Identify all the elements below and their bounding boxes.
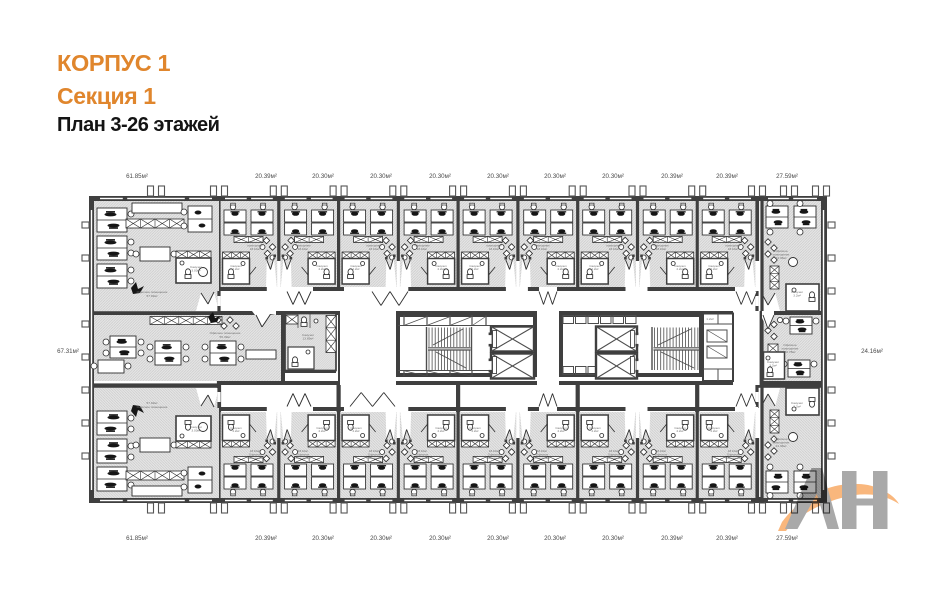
svg-text:3.03м²: 3.03м²: [191, 428, 200, 432]
svg-text:2.2м²: 2.2м²: [472, 267, 479, 271]
svg-text:20.30м²: 20.30м²: [312, 535, 334, 542]
svg-text:24.36м²: 24.36м²: [776, 256, 787, 260]
svg-text:27.59м²: 27.59м²: [776, 173, 798, 180]
svg-text:24.16м²: 24.16м²: [861, 348, 883, 355]
svg-text:помещение: помещение: [534, 456, 550, 460]
svg-text:57.92м²: 57.92м²: [147, 294, 158, 298]
svg-text:3.2м²: 3.2м²: [793, 404, 800, 408]
svg-text:18.10м²: 18.10м²: [250, 247, 260, 251]
svg-text:3.2м²: 3.2м²: [769, 363, 776, 367]
svg-text:18.10м²: 18.10м²: [656, 247, 666, 251]
svg-text:20.30м²: 20.30м²: [429, 173, 451, 180]
svg-text:67.31м²: 67.31м²: [57, 348, 79, 355]
svg-text:18.10м²: 18.10м²: [489, 247, 499, 251]
svg-text:помещение: помещение: [247, 456, 263, 460]
svg-text:61.85м²: 61.85м²: [126, 535, 148, 542]
svg-text:2.2м²: 2.2м²: [558, 267, 565, 271]
svg-text:20.30м²: 20.30м²: [312, 173, 334, 180]
svg-text:20.78м²: 20.78м²: [785, 350, 796, 354]
svg-text:18.10м²: 18.10м²: [609, 247, 619, 251]
svg-text:2.2м²: 2.2м²: [711, 267, 718, 271]
svg-text:2.2м²: 2.2м²: [233, 429, 240, 433]
svg-text:20.30м²: 20.30м²: [602, 173, 624, 180]
svg-text:помещение: помещение: [725, 456, 741, 460]
svg-text:2.2м²: 2.2м²: [438, 267, 445, 271]
svg-text:20.39м²: 20.39м²: [716, 173, 738, 180]
svg-text:1.2м²: 1.2м²: [706, 317, 713, 321]
svg-text:2.2м²: 2.2м²: [319, 267, 326, 271]
svg-text:20.30м²: 20.30м²: [370, 535, 392, 542]
svg-text:2.2м²: 2.2м²: [677, 429, 684, 433]
svg-text:Офисное помещение: Офисное помещение: [137, 405, 168, 409]
svg-text:18.10м²: 18.10м²: [417, 247, 427, 251]
svg-text:18.10м²: 18.10м²: [537, 247, 547, 251]
svg-text:13.85м²: 13.85м²: [303, 337, 314, 341]
svg-text:2.2м²: 2.2м²: [592, 267, 599, 271]
svg-text:61.85м²: 61.85м²: [126, 173, 148, 180]
svg-text:55.49м²: 55.49м²: [220, 335, 231, 339]
svg-text:3.03м²: 3.03м²: [191, 268, 200, 272]
svg-text:2.2м²: 2.2м²: [558, 429, 565, 433]
svg-text:20.39м²: 20.39м²: [661, 173, 683, 180]
svg-text:20.30м²: 20.30м²: [544, 173, 566, 180]
svg-text:помещение: помещение: [653, 456, 669, 460]
svg-text:2.2м²: 2.2м²: [472, 429, 479, 433]
svg-text:2.2м²: 2.2м²: [592, 429, 599, 433]
svg-text:18.10м²: 18.10м²: [728, 247, 738, 251]
svg-text:20.39м²: 20.39м²: [255, 173, 277, 180]
svg-text:18.10м²: 18.10м²: [298, 247, 308, 251]
svg-text:КОРПУС 1: КОРПУС 1: [57, 50, 171, 76]
svg-text:помещение: помещение: [366, 456, 382, 460]
svg-text:20.30м²: 20.30м²: [544, 535, 566, 542]
svg-text:20.30м²: 20.30м²: [487, 535, 509, 542]
svg-text:27.59м²: 27.59м²: [776, 535, 798, 542]
svg-text:Секция 1: Секция 1: [57, 83, 156, 109]
svg-text:помещение: помещение: [414, 456, 430, 460]
svg-text:3.2м²: 3.2м²: [793, 293, 800, 297]
svg-text:20.39м²: 20.39м²: [716, 535, 738, 542]
svg-text:20.39м²: 20.39м²: [255, 535, 277, 542]
svg-text:20.39м²: 20.39м²: [661, 535, 683, 542]
svg-text:24.36м²: 24.36м²: [776, 444, 787, 448]
svg-text:помещение: помещение: [606, 456, 622, 460]
svg-text:2.2м²: 2.2м²: [711, 429, 718, 433]
svg-text:20.30м²: 20.30м²: [602, 535, 624, 542]
svg-text:20.30м²: 20.30м²: [370, 173, 392, 180]
svg-text:2.2м²: 2.2м²: [319, 429, 326, 433]
svg-text:2.2м²: 2.2м²: [438, 429, 445, 433]
svg-text:20.30м²: 20.30м²: [487, 173, 509, 180]
svg-text:2.2м²: 2.2м²: [353, 267, 360, 271]
svg-text:18.10м²: 18.10м²: [369, 247, 379, 251]
svg-text:План 3-26 этажей: План 3-26 этажей: [57, 114, 219, 136]
svg-text:помещение: помещение: [295, 456, 311, 460]
svg-text:2.2м²: 2.2м²: [233, 267, 240, 271]
svg-text:2.2м²: 2.2м²: [353, 429, 360, 433]
svg-text:20.30м²: 20.30м²: [429, 535, 451, 542]
svg-text:помещение: помещение: [486, 456, 502, 460]
svg-text:2.2м²: 2.2м²: [677, 267, 684, 271]
